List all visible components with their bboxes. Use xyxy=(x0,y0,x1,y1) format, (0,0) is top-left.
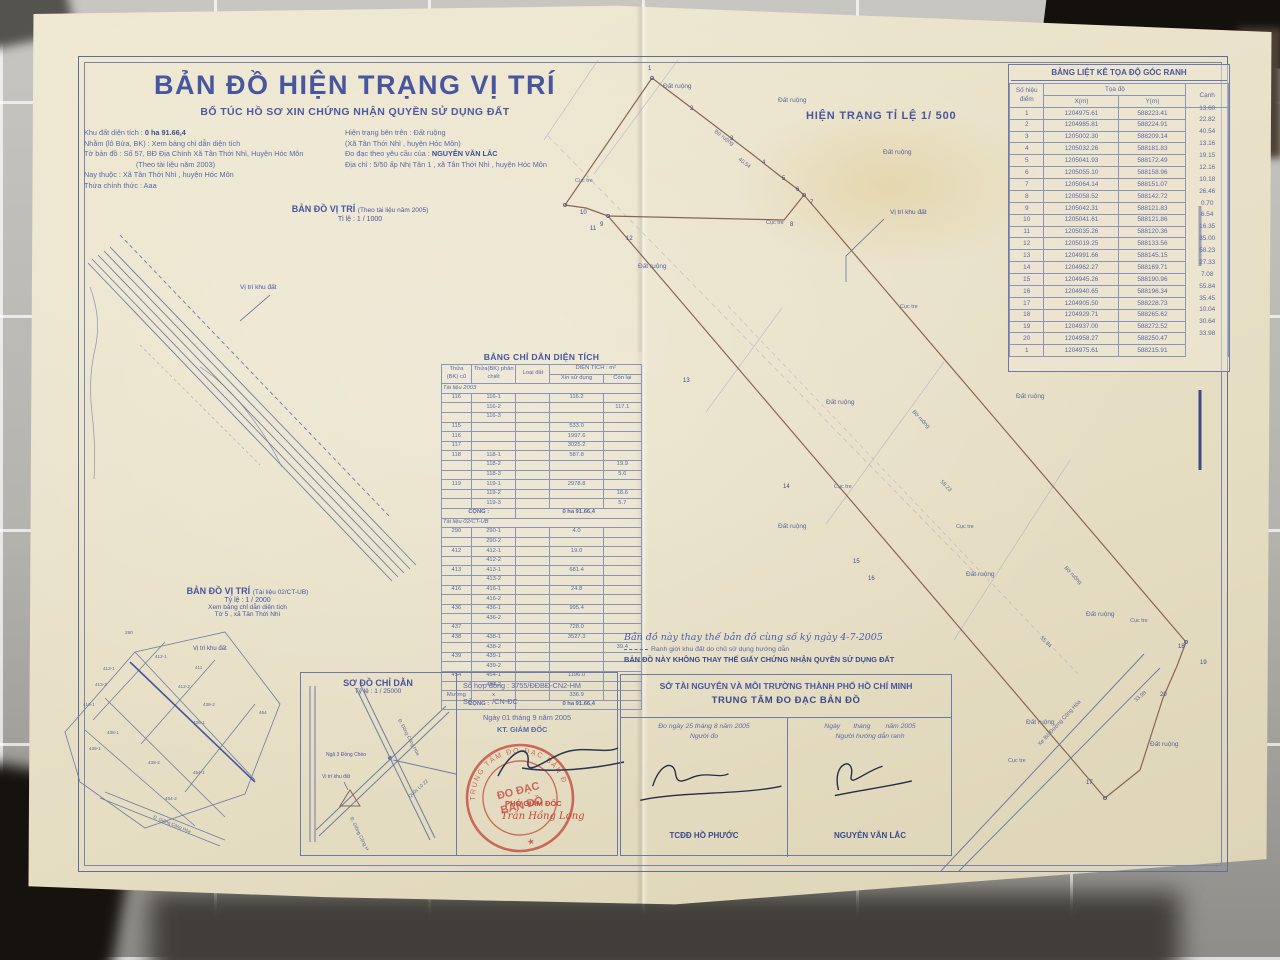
point-number: 18 xyxy=(1178,644,1185,650)
table-cell: 20 xyxy=(1010,333,1044,345)
table-row: 11204975.61588215.91 xyxy=(1010,345,1229,357)
table-cell: 588145.15 xyxy=(1119,250,1186,262)
table-cell: 438 xyxy=(442,633,472,643)
table-cell: 55.84 xyxy=(1186,280,1229,292)
table-row: 118-219.9 xyxy=(442,460,642,470)
table-cell xyxy=(516,652,550,662)
dimension-label: 55.84 xyxy=(1039,635,1053,649)
table-cell: 588142.72 xyxy=(1119,190,1186,202)
table-cell xyxy=(603,604,641,614)
point-number: 10 xyxy=(580,210,587,216)
info-line: Nay thuộc : Xã Tân Thới Nhì , huyện Hóc … xyxy=(84,170,384,181)
table-cell xyxy=(442,576,472,586)
parcel-label: 412-2 xyxy=(178,684,190,689)
table-cell: 416-2 xyxy=(471,595,516,605)
parcel-label: 454-1 xyxy=(193,770,205,775)
table-cell: 11 xyxy=(1010,226,1044,238)
info-line: (Theo tài liệu năm 2003) xyxy=(84,160,384,171)
label-leader-line xyxy=(240,295,270,321)
surveyor-signature xyxy=(635,747,785,813)
table-cell: 588158.96 xyxy=(1119,167,1186,179)
handwritten-note: Bản đồ này thay thế bản đồ cùng số ký ng… xyxy=(624,632,954,643)
table-cell xyxy=(603,480,641,490)
info-line: (Xã Tân Thới Nhì , huyện Hóc Môn) xyxy=(345,139,645,150)
table-cell: 35.00 xyxy=(1186,233,1229,245)
map-2000-title-block: BẢN ĐỒ VỊ TRÍ (Tài liệu 02/CT-UB) Tỷ lệ … xyxy=(140,586,355,618)
table-cell xyxy=(603,614,641,624)
table-cell xyxy=(550,595,603,605)
table-cell: 118-3 xyxy=(471,470,516,480)
table-cell: 1204991.66 xyxy=(1044,250,1119,262)
table-cell: 1205041.93 xyxy=(1044,155,1119,167)
table-cell: 588250.47 xyxy=(1119,333,1186,345)
table-cell: 2 xyxy=(1010,119,1044,131)
parcel-label: 438-2 xyxy=(148,760,160,765)
parcel-label: 436-1 xyxy=(193,720,205,725)
table-cell: 588133.56 xyxy=(1119,238,1186,250)
table-cell: 22.82 xyxy=(1186,114,1229,126)
table-cell: 117 xyxy=(442,441,472,451)
table-cell: 438-1 xyxy=(471,633,516,643)
table-row: 119-35.7 xyxy=(442,499,642,509)
table-cell: 6.54 xyxy=(1186,209,1229,221)
table-row: 116-3 xyxy=(442,412,642,422)
table-cell: 116.2 xyxy=(550,393,603,403)
guide-map-title: SƠ ĐỒ CHỈ DẪN xyxy=(304,678,452,688)
table-cell xyxy=(516,614,550,624)
left-sign-date: Đo ngày 25 tháng 8 năm 2005 xyxy=(625,723,783,730)
table-cell: 1205058.52 xyxy=(1044,190,1119,202)
table-row: 439439-1 xyxy=(442,652,642,662)
table-cell: 5 xyxy=(1010,155,1044,167)
bo-ruong-label: Bờ ruộng xyxy=(911,409,931,430)
parcel-label: 290 xyxy=(125,630,133,635)
map-notes-block: Bản đồ này thay thế bản đồ cùng số ký ng… xyxy=(624,632,954,664)
table-row: 437728.0 xyxy=(442,624,642,634)
table-cell xyxy=(516,566,550,576)
table-cell: 588224.91 xyxy=(1119,119,1186,131)
table-cell: 7.08 xyxy=(1186,269,1229,281)
dat-ruong-label: Đất ruộng xyxy=(1150,739,1179,748)
point-number: 11 xyxy=(590,226,597,232)
table-cell xyxy=(442,489,472,499)
table-cell: 1204975.61 xyxy=(1044,345,1119,357)
table-cell: 1205032.26 xyxy=(1044,143,1119,155)
dat-ruong-label: Đất ruộng xyxy=(778,521,807,530)
table-cell xyxy=(442,643,472,653)
point-number: 12 xyxy=(626,236,633,242)
dimension-label: 40.54 xyxy=(737,157,752,170)
table-cell: 439-1 xyxy=(471,652,516,662)
table-cell xyxy=(516,480,550,490)
point-number: 5 xyxy=(782,176,786,182)
table-cell xyxy=(603,566,641,576)
table-cell: 16 xyxy=(1010,285,1044,297)
table-cell: 1204945.26 xyxy=(1044,274,1119,286)
owner-signature xyxy=(811,747,921,813)
table-cell xyxy=(550,403,603,413)
table-cell: 18 xyxy=(1010,309,1044,321)
table-cell xyxy=(550,614,603,624)
total-value: 0 ha 91.66,4 xyxy=(516,508,642,518)
table-cell xyxy=(550,652,603,662)
table-cell xyxy=(516,528,550,538)
surveyor-name: TCĐĐ HỒ PHƯỚC xyxy=(625,831,783,840)
cuc-tre-label: Cục tre xyxy=(1008,758,1026,764)
info-line: Đo đạc theo yêu cầu của : NGUYỄN VĂN LẮC xyxy=(345,149,645,160)
table-cell xyxy=(603,528,641,538)
table-cell: 119 xyxy=(442,480,472,490)
table-cell: 588215.91 xyxy=(1119,345,1186,357)
area-table: Thửa (BK) cũ Thửa(BK) phân chiết Loại đấ… xyxy=(441,364,642,710)
table-cell: 115 xyxy=(442,422,472,432)
cuc-tre-label: Cục tre xyxy=(834,484,852,490)
parcel-info-left: Khu đất diện tích : 0 ha 91.66,4 Nhằm (l… xyxy=(84,128,384,191)
table-cell xyxy=(603,422,641,432)
table-cell: 1204985.81 xyxy=(1044,119,1119,131)
table-cell xyxy=(471,432,516,442)
table-cell: 119-1 xyxy=(471,480,516,490)
point-number: 6 xyxy=(796,187,800,193)
table-row: 438-239.4 xyxy=(442,643,642,653)
table-row: 118118-1587.8 xyxy=(442,451,642,461)
table-cell: 30.64 xyxy=(1186,316,1229,328)
table-cell xyxy=(550,662,603,672)
table-cell: 5.6 xyxy=(603,470,641,480)
table-cell: 117.1 xyxy=(603,403,641,413)
right-sign-date: Ngày tháng năm 2005 xyxy=(791,723,949,730)
table-cell xyxy=(516,547,550,557)
table-row: 290290-14.0 xyxy=(442,528,642,538)
table-cell xyxy=(516,662,550,672)
table-cell xyxy=(603,393,641,403)
owner-name: NGUYỄN VĂN LẮC xyxy=(791,831,949,840)
table-row: 119-218.6 xyxy=(442,489,642,499)
table-cell xyxy=(516,585,550,595)
table-cell: 588196.34 xyxy=(1119,285,1186,297)
dat-ruong-label: Đất ruộng xyxy=(966,569,995,578)
table-cell: 995.4 xyxy=(550,604,603,614)
section-label: Tài liệu 02/CT-UB xyxy=(442,518,642,528)
table-cell xyxy=(516,441,550,451)
table-cell: 728.0 xyxy=(550,624,603,634)
table-cell xyxy=(516,412,550,422)
contract-secondary-line: Số /CN-ĐC xyxy=(463,697,615,708)
dat-ruong-label: Đất ruộng xyxy=(663,81,692,90)
table-cell: 118-2 xyxy=(471,460,516,470)
table-cell: 16.35 xyxy=(1186,221,1229,233)
table-cell: 439-2 xyxy=(471,662,516,672)
table-cell: 1204937.00 xyxy=(1044,321,1119,333)
table-cell: 1204962.27 xyxy=(1044,262,1119,274)
table-cell xyxy=(603,537,641,547)
table-cell xyxy=(442,614,472,624)
photo-of-cadastral-map: Đất ruộng Đất ruộng Đất ruộng Đất ruộng … xyxy=(0,0,1280,960)
table-row: 413413-1681.4 xyxy=(442,566,642,576)
map-2000-title: BẢN ĐỒ VỊ TRÍ xyxy=(187,586,251,596)
table-cell: 588223.41 xyxy=(1119,107,1186,119)
info-line: Tờ bản đồ : Số 57, BĐ Địa Chính Xã Tân T… xyxy=(84,149,384,160)
table-row: 1161997.6 xyxy=(442,432,642,442)
location-map-1000-canvas: Vị trí khu đất xyxy=(80,225,445,585)
table-row: 439-2 xyxy=(442,662,642,672)
section-label: Tài liệu 2003 xyxy=(442,384,642,394)
table-cell xyxy=(550,556,603,566)
column-header: Y(m) xyxy=(1119,95,1186,107)
table-cell xyxy=(550,643,603,653)
stamp-star-icon: ★ xyxy=(526,836,536,848)
table-cell: 1205019.25 xyxy=(1044,238,1119,250)
department-line1: SỞ TÀI NGUYÊN VÀ MÔI TRƯỜNG THÀNH PHỐ HỒ… xyxy=(621,681,951,691)
map-1000-title: BẢN ĐỒ VỊ TRÍ xyxy=(292,204,356,214)
info-label: Đo đạc theo yêu cầu của : xyxy=(345,149,430,158)
column-header: Thửa(BK) phân chiết xyxy=(471,365,516,384)
table-cell: 3527.3 xyxy=(550,633,603,643)
table-cell: 13.60 xyxy=(1186,102,1229,114)
table-cell: 19 xyxy=(1010,321,1044,333)
table-cell: 588181.83 xyxy=(1119,143,1186,155)
contract-date: Ngày 01 tháng 9 năm 2005 xyxy=(483,713,619,724)
table-cell: 1204975.61 xyxy=(1044,107,1119,119)
table-cell: 1204905.50 xyxy=(1044,297,1119,309)
table-cell xyxy=(516,499,550,509)
table-cell: 27.33 xyxy=(1186,257,1229,269)
coordinate-table-panel: BẢNG LIỆT KÊ TỌA ĐỘ GÓC RANH Số hiệu điể… xyxy=(1008,64,1230,372)
dimension-label: 58.23 xyxy=(939,479,953,493)
table-cell xyxy=(516,643,550,653)
bo-ruong-label: Bờ ruộng xyxy=(1063,565,1083,586)
table-cell: 10.18 xyxy=(1186,174,1229,186)
table-cell: 436 xyxy=(442,604,472,614)
table-cell xyxy=(442,499,472,509)
table-cell: 3 xyxy=(1010,131,1044,143)
table-cell: 33.98 xyxy=(1186,328,1229,340)
point-number: 20 xyxy=(1160,692,1167,698)
cuc-tre-label: Cục tre xyxy=(575,178,593,184)
table-cell: 588172.49 xyxy=(1119,155,1186,167)
table-cell: 290 xyxy=(442,528,472,538)
left-sign-role: Người đo xyxy=(625,733,783,740)
table-cell xyxy=(471,624,516,634)
column-header: Xin sử dụng xyxy=(550,374,603,384)
table-cell: 2978.8 xyxy=(550,480,603,490)
table-row: 436-2 xyxy=(442,614,642,624)
table-cell xyxy=(442,403,472,413)
point-number: 14 xyxy=(783,484,790,490)
column-header: Thửa (BK) cũ xyxy=(442,365,472,384)
table-cell xyxy=(442,662,472,672)
map-2000-note: (Tài liệu 02/CT-UB) xyxy=(253,589,309,596)
table-cell xyxy=(471,441,516,451)
point-number: 19 xyxy=(1200,660,1207,666)
table-cell xyxy=(1186,340,1229,352)
info-line: Địa chỉ : 5/50 ấp Nhị Tân 1 , xã Tân Thớ… xyxy=(345,160,645,171)
site-pointer-label: Vị trí khu đất xyxy=(890,207,927,216)
table-cell: 588121.83 xyxy=(1119,202,1186,214)
table-cell: 412-2 xyxy=(471,556,516,566)
table-cell: 290-1 xyxy=(471,528,516,538)
table-cell: 1205041.61 xyxy=(1044,214,1119,226)
table-cell: 116 xyxy=(442,393,472,403)
table-cell: 17 xyxy=(1010,297,1044,309)
table-row: 115533.0 xyxy=(442,422,642,432)
table-cell: 1205055.10 xyxy=(1044,167,1119,179)
table-cell: 4 xyxy=(1010,143,1044,155)
column-header: Số hiệu điểm xyxy=(1010,84,1044,108)
table-cell xyxy=(516,403,550,413)
dat-ruong-label: Đất ruộng xyxy=(883,147,912,156)
table-cell: 10 xyxy=(1010,214,1044,226)
table-cell: 119-2 xyxy=(471,489,516,499)
contract-number-line: Số hợp đồng : 3755/ĐĐBĐ-CN2-HM xyxy=(463,681,615,692)
dat-ruong-label: Đất ruộng xyxy=(638,261,667,270)
cuc-tre-label: Cục tre xyxy=(766,220,784,226)
legend-note: Ranh giới khu đất do chủ sử dụng hướng d… xyxy=(624,646,954,653)
info-line: Nhằm (lô Bửa, BK) : Xem bảng chỉ dẫn diệ… xyxy=(84,139,384,150)
map-2000-subnote: Xem bảng chỉ dẫn diện tích xyxy=(140,604,355,611)
signature-panel: SỞ TÀI NGUYÊN VÀ MÔI TRƯỜNG THÀNH PHỐ HỒ… xyxy=(620,674,952,856)
table-cell: 437 xyxy=(442,624,472,634)
table-cell: 1205002.30 xyxy=(1044,131,1119,143)
table-cell xyxy=(516,537,550,547)
column-header: Còn lại xyxy=(603,374,641,384)
divider xyxy=(787,717,788,857)
table-cell: 10.04 xyxy=(1186,304,1229,316)
info-line: Thửa chính thức : Aaa xyxy=(84,181,384,192)
table-cell xyxy=(442,470,472,480)
table-cell: 588151.07 xyxy=(1119,179,1186,191)
table-cell: 116 xyxy=(442,432,472,442)
guide-map-scale: Tỷ lệ : 1 / 25000 xyxy=(304,688,452,695)
table-cell: 412 xyxy=(442,547,472,557)
area-table-total-1: CỘNG : 0 ha 91.66,4 Tài liệu 02/CT-UB xyxy=(442,508,642,527)
table-cell: 1205064.14 xyxy=(1044,179,1119,191)
table-cell: 116-3 xyxy=(471,412,516,422)
table-cell: 6 xyxy=(1010,167,1044,179)
table-row: 290-2 xyxy=(442,537,642,547)
parcel-number-labels: 290 411 412-1 412-2 413-1 413-2 416-1 43… xyxy=(83,630,267,801)
map-1000-note: (Theo tài liệu năm 2005) xyxy=(358,207,428,214)
table-cell: 588272.52 xyxy=(1119,321,1186,333)
label-leader-line xyxy=(846,219,884,282)
table-cell xyxy=(603,595,641,605)
table-cell: 413 xyxy=(442,566,472,576)
table-cell: 40.54 xyxy=(1186,126,1229,138)
table-cell xyxy=(603,451,641,461)
column-header: X(m) xyxy=(1044,95,1119,107)
site-pointer-label: Vị trí khu đất xyxy=(193,646,227,652)
page-title: BẢN ĐỒ HIỆN TRẠNG VỊ TRÍ xyxy=(90,70,620,101)
table-cell xyxy=(516,460,550,470)
table-row: 438438-13527.3 xyxy=(442,633,642,643)
table-cell: 116-2 xyxy=(471,403,516,413)
disclaimer-note: BẢN ĐỒ NÀY KHÔNG THAY THẾ GIẤY CHỨNG NHẬ… xyxy=(624,655,954,664)
table-cell: 15 xyxy=(1010,274,1044,286)
table-cell: 436-2 xyxy=(471,614,516,624)
table-cell: 588121.86 xyxy=(1119,214,1186,226)
parcel-label: 438-1 xyxy=(107,730,119,735)
table-cell xyxy=(550,489,603,499)
table-cell: 118-1 xyxy=(471,451,516,461)
table-cell xyxy=(603,441,641,451)
table-cell: 588209.14 xyxy=(1119,131,1186,143)
area-table-body-1: 116116-1116.2116-2117.1116-3115533.01161… xyxy=(442,393,642,508)
table-row: 119119-12978.8 xyxy=(442,480,642,490)
legend-note-text: Ranh giới khu đất do chủ sử dụng hướng d… xyxy=(651,646,789,653)
table-cell: 19.0 xyxy=(550,547,603,557)
table-cell: 533.0 xyxy=(550,422,603,432)
table-cell xyxy=(516,470,550,480)
table-cell xyxy=(550,470,603,480)
table-cell xyxy=(603,585,641,595)
table-cell: 119-3 xyxy=(471,499,516,509)
table-cell: 438-2 xyxy=(471,643,516,653)
table-cell: 19.15 xyxy=(1186,150,1229,162)
table-cell: 14 xyxy=(1010,262,1044,274)
info-value: 0 ha 91.66,4 xyxy=(145,128,186,137)
table-cell: 8 xyxy=(1010,190,1044,202)
point-number: 13 xyxy=(683,378,690,384)
table-cell xyxy=(603,547,641,557)
parcel-grid-lines xyxy=(65,632,280,846)
table-row: 416416-124.8 xyxy=(442,585,642,595)
table-cell: 13 xyxy=(1010,250,1044,262)
table-cell: 9 xyxy=(1010,202,1044,214)
table-cell: 588265.62 xyxy=(1119,309,1186,321)
table-cell: 588228.73 xyxy=(1119,297,1186,309)
area-table-panel: BẢNG CHỈ DẪN DIỆN TÍCH Thửa (BK) cũ Thửa… xyxy=(441,352,642,674)
map-2000-scale: Tỷ lệ : 1 / 2000 xyxy=(140,597,355,604)
table-cell xyxy=(603,576,641,586)
table-cell xyxy=(442,412,472,422)
coordinate-table-body: 11204975.61588223.4113.6021204985.815882… xyxy=(1010,107,1229,356)
table-cell xyxy=(516,576,550,586)
table-cell xyxy=(516,595,550,605)
table-cell: 681.4 xyxy=(550,566,603,576)
table-cell: 5.7 xyxy=(603,499,641,509)
parcel-info-right: Hiện trạng bên trên : Đất ruộng (Xã Tân … xyxy=(345,128,645,170)
table-cell: 416-1 xyxy=(471,585,516,595)
parcel-label: 454-2 xyxy=(165,796,177,801)
table-cell: 416 xyxy=(442,585,472,595)
cuc-tre-label: Cục tre xyxy=(956,524,974,530)
dashed-line-symbol xyxy=(624,649,648,650)
dat-ruong-label: Đất ruộng xyxy=(778,95,807,104)
table-cell: 1204929.71 xyxy=(1044,309,1119,321)
parcel-label: 411 xyxy=(195,665,203,670)
table-cell xyxy=(603,432,641,442)
area-table-section1: Tài liệu 2003 xyxy=(442,384,642,394)
table-cell: 413-1 xyxy=(471,566,516,576)
total-label: CỘNG : xyxy=(442,508,516,518)
table-cell: 1205042.31 xyxy=(1044,202,1119,214)
table-cell: 587.8 xyxy=(550,451,603,461)
requester-name: NGUYỄN VĂN LẮC xyxy=(432,149,498,158)
table-cell xyxy=(442,595,472,605)
table-cell: 436-1 xyxy=(471,604,516,614)
table-row: 436436-1995.4 xyxy=(442,604,642,614)
map-1000-scale: Tỉ lệ : 1 / 1000 xyxy=(240,216,480,223)
table-cell: 12.16 xyxy=(1186,162,1229,174)
table-cell xyxy=(516,633,550,643)
location-map-2000-canvas: Vị trí khu đất 290 411 412-1 412-2 413-1… xyxy=(45,612,300,850)
parcel-label: 436-2 xyxy=(203,702,215,707)
table-cell: 412-1 xyxy=(471,547,516,557)
info-line: Hiện trạng bên trên : Đất ruộng xyxy=(345,128,645,139)
table-cell xyxy=(516,624,550,634)
table-cell: 1 xyxy=(1010,345,1044,357)
divider xyxy=(621,717,951,718)
